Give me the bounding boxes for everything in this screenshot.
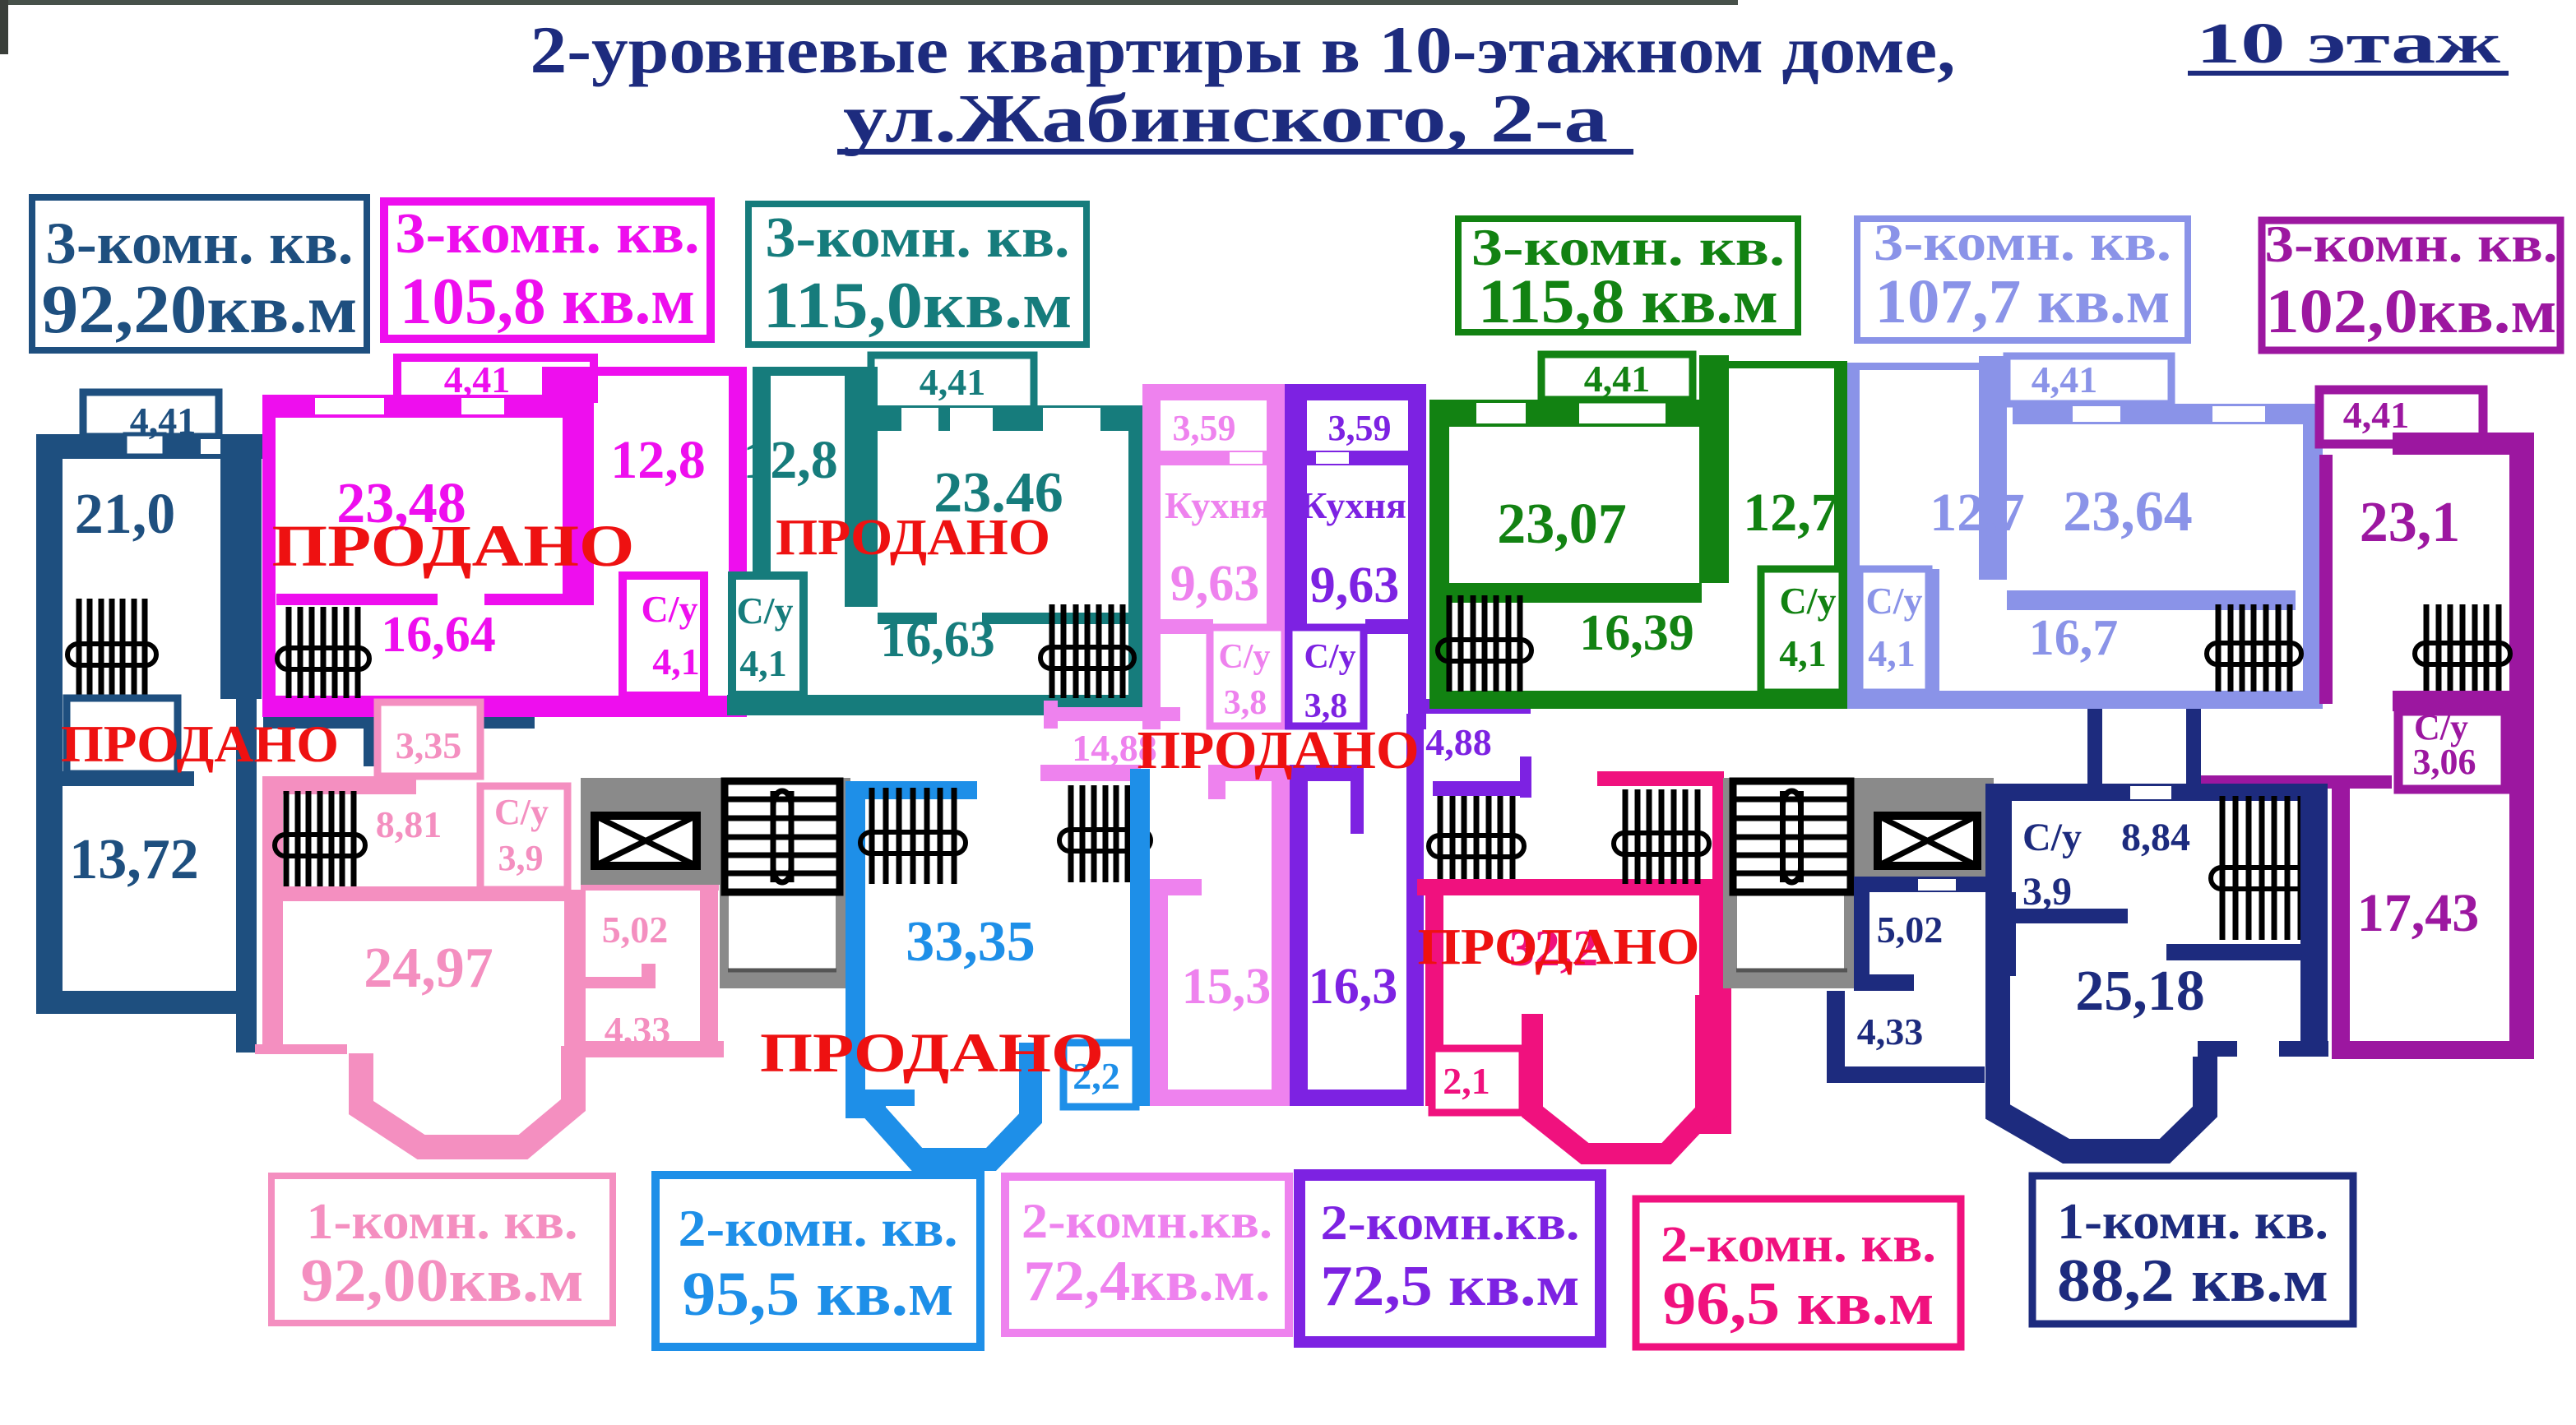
svg-text:С/у: С/у bbox=[1780, 580, 1837, 622]
svg-text:ПРОДАНО: ПРОДАНО bbox=[760, 1021, 1104, 1084]
svg-text:105,8 кв.м: 105,8 кв.м bbox=[400, 266, 695, 338]
svg-text:2,1: 2,1 bbox=[1443, 1060, 1490, 1102]
svg-text:5,02: 5,02 bbox=[1877, 909, 1944, 951]
svg-text:2-комн. кв.: 2-комн. кв. bbox=[1661, 1217, 1936, 1273]
svg-text:12,8: 12,8 bbox=[743, 430, 838, 490]
svg-text:115,0кв.м: 115,0кв.м bbox=[763, 270, 1073, 342]
svg-text:4,41: 4,41 bbox=[444, 359, 511, 400]
svg-text:13,72: 13,72 bbox=[69, 828, 199, 891]
svg-text:ПРОДАНО: ПРОДАНО bbox=[776, 510, 1050, 566]
svg-text:95,5 кв.м: 95,5 кв.м bbox=[683, 1260, 954, 1329]
svg-text:3,59: 3,59 bbox=[1173, 408, 1236, 448]
svg-text:23,1: 23,1 bbox=[2360, 491, 2461, 554]
svg-text:1-комн. кв.: 1-комн. кв. bbox=[307, 1194, 578, 1250]
svg-text:102,0кв.м: 102,0кв.м bbox=[2266, 277, 2557, 346]
svg-text:2-комн.кв.: 2-комн.кв. bbox=[1321, 1196, 1580, 1250]
svg-text:3,59: 3,59 bbox=[1328, 408, 1392, 448]
svg-text:4,1: 4,1 bbox=[652, 641, 700, 682]
svg-text:1-комн. кв.: 1-комн. кв. bbox=[2057, 1194, 2328, 1250]
svg-text:ПРОДАНО: ПРОДАНО bbox=[61, 715, 339, 773]
svg-text:ПРОДАНО: ПРОДАНО bbox=[1137, 720, 1420, 780]
svg-text:Кухня: Кухня bbox=[1165, 484, 1272, 526]
svg-text:9,63: 9,63 bbox=[1310, 558, 1400, 613]
svg-text:4,1: 4,1 bbox=[1779, 632, 1827, 674]
svg-text:С/у: С/у bbox=[1219, 638, 1271, 676]
svg-text:3,9: 3,9 bbox=[498, 838, 544, 878]
svg-text:5,02: 5,02 bbox=[602, 909, 669, 951]
svg-text:С/у: С/у bbox=[1866, 580, 1923, 622]
svg-text:16,3: 16,3 bbox=[1309, 959, 1398, 1015]
svg-text:96,5 кв.м: 96,5 кв.м bbox=[1663, 1270, 1934, 1338]
svg-text:4,1: 4,1 bbox=[1868, 632, 1916, 674]
svg-text:16,64: 16,64 bbox=[381, 607, 496, 663]
svg-text:2-комн. кв.: 2-комн. кв. bbox=[679, 1199, 958, 1257]
svg-text:3,35: 3,35 bbox=[396, 724, 462, 766]
svg-text:3-комн. кв.: 3-комн. кв. bbox=[396, 202, 700, 266]
svg-text:115,8 кв.м: 115,8 кв.м bbox=[1478, 267, 1778, 336]
svg-text:4,33: 4,33 bbox=[1857, 1011, 1924, 1053]
svg-text:С/у: С/у bbox=[642, 588, 698, 630]
svg-text:92,20кв.м: 92,20кв.м bbox=[42, 271, 358, 348]
svg-text:3-комн. кв.: 3-комн. кв. bbox=[766, 206, 1070, 270]
svg-text:72,4кв.м.: 72,4кв.м. bbox=[1024, 1250, 1271, 1313]
svg-text:3-комн. кв.: 3-комн. кв. bbox=[2265, 215, 2558, 273]
svg-text:3-комн. кв.: 3-комн. кв. bbox=[1874, 213, 2171, 271]
svg-text:4,41: 4,41 bbox=[2032, 359, 2098, 400]
svg-text:92,00кв.м: 92,00кв.м bbox=[301, 1247, 584, 1315]
svg-text:23,07: 23,07 bbox=[1497, 493, 1627, 556]
svg-text:4,41: 4,41 bbox=[130, 400, 197, 442]
svg-text:23,64: 23,64 bbox=[2063, 480, 2193, 544]
svg-text:3,9: 3,9 bbox=[2022, 870, 2072, 914]
svg-text:24,97: 24,97 bbox=[364, 937, 493, 1000]
svg-text:33,35: 33,35 bbox=[906, 910, 1035, 974]
svg-text:2-уровневые квартиры в 10-этаж: 2-уровневые квартиры в 10-этажном доме, bbox=[530, 12, 1956, 87]
svg-text:С/у: С/у bbox=[737, 590, 794, 632]
svg-text:4,1: 4,1 bbox=[739, 642, 787, 684]
svg-text:3,8: 3,8 bbox=[1224, 684, 1267, 722]
svg-text:3,06: 3,06 bbox=[2413, 742, 2476, 782]
svg-text:ПРОДАНО: ПРОДАНО bbox=[1418, 919, 1700, 975]
svg-text:16,63: 16,63 bbox=[880, 612, 995, 668]
svg-text:4,41: 4,41 bbox=[1584, 358, 1651, 400]
svg-text:10 этаж: 10 этаж bbox=[2196, 12, 2500, 76]
svg-text:88,2 кв.м: 88,2 кв.м bbox=[2057, 1247, 2328, 1315]
svg-text:16,7: 16,7 bbox=[2029, 610, 2119, 666]
svg-text:С/у: С/у bbox=[1304, 638, 1356, 676]
svg-text:9,63: 9,63 bbox=[1170, 556, 1260, 612]
svg-text:17,43: 17,43 bbox=[2357, 883, 2480, 943]
svg-text:ул.Жабинского, 2-а: ул.Жабинского, 2-а bbox=[843, 81, 1608, 157]
svg-text:25,18: 25,18 bbox=[2075, 960, 2205, 1023]
svg-text:С/у: С/у bbox=[494, 792, 549, 832]
svg-text:ПРОДАНО: ПРОДАНО bbox=[272, 513, 635, 579]
svg-text:4,41: 4,41 bbox=[920, 361, 986, 403]
svg-text:Кухня: Кухня bbox=[1300, 484, 1406, 526]
svg-text:12,7: 12,7 bbox=[1743, 483, 1838, 543]
svg-text:3-комн. кв.: 3-комн. кв. bbox=[46, 211, 354, 276]
svg-text:16,39: 16,39 bbox=[1579, 605, 1694, 661]
svg-text:107,7 кв.м: 107,7 кв.м bbox=[1875, 267, 2171, 336]
svg-text:С/у: С/у bbox=[2022, 816, 2082, 859]
svg-text:72,5 кв.м: 72,5 кв.м bbox=[1321, 1255, 1580, 1318]
svg-text:21,0: 21,0 bbox=[75, 483, 176, 546]
svg-text:12,8: 12,8 bbox=[610, 430, 706, 490]
svg-text:12,7: 12,7 bbox=[1930, 483, 2025, 543]
svg-text:15,3: 15,3 bbox=[1182, 959, 1272, 1015]
svg-text:4,41: 4,41 bbox=[2343, 394, 2410, 436]
svg-text:2-комн.кв.: 2-комн.кв. bbox=[1022, 1194, 1272, 1248]
svg-text:8,84: 8,84 bbox=[2121, 816, 2190, 859]
svg-text:8,81: 8,81 bbox=[376, 803, 442, 845]
